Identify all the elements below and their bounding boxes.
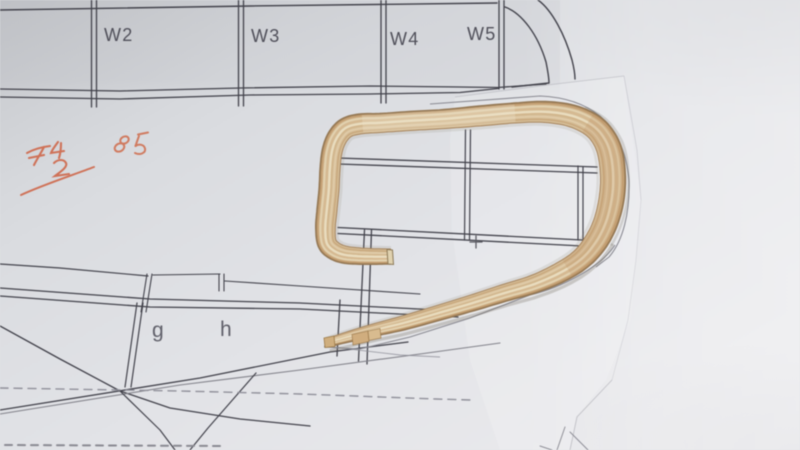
svg-text:W2: W2 (104, 25, 133, 45)
svg-text:g: g (152, 319, 164, 342)
svg-text:h: h (220, 318, 232, 341)
svg-text:W5: W5 (467, 24, 496, 44)
svg-text:W3: W3 (251, 26, 280, 46)
svg-text:W4: W4 (390, 29, 419, 49)
